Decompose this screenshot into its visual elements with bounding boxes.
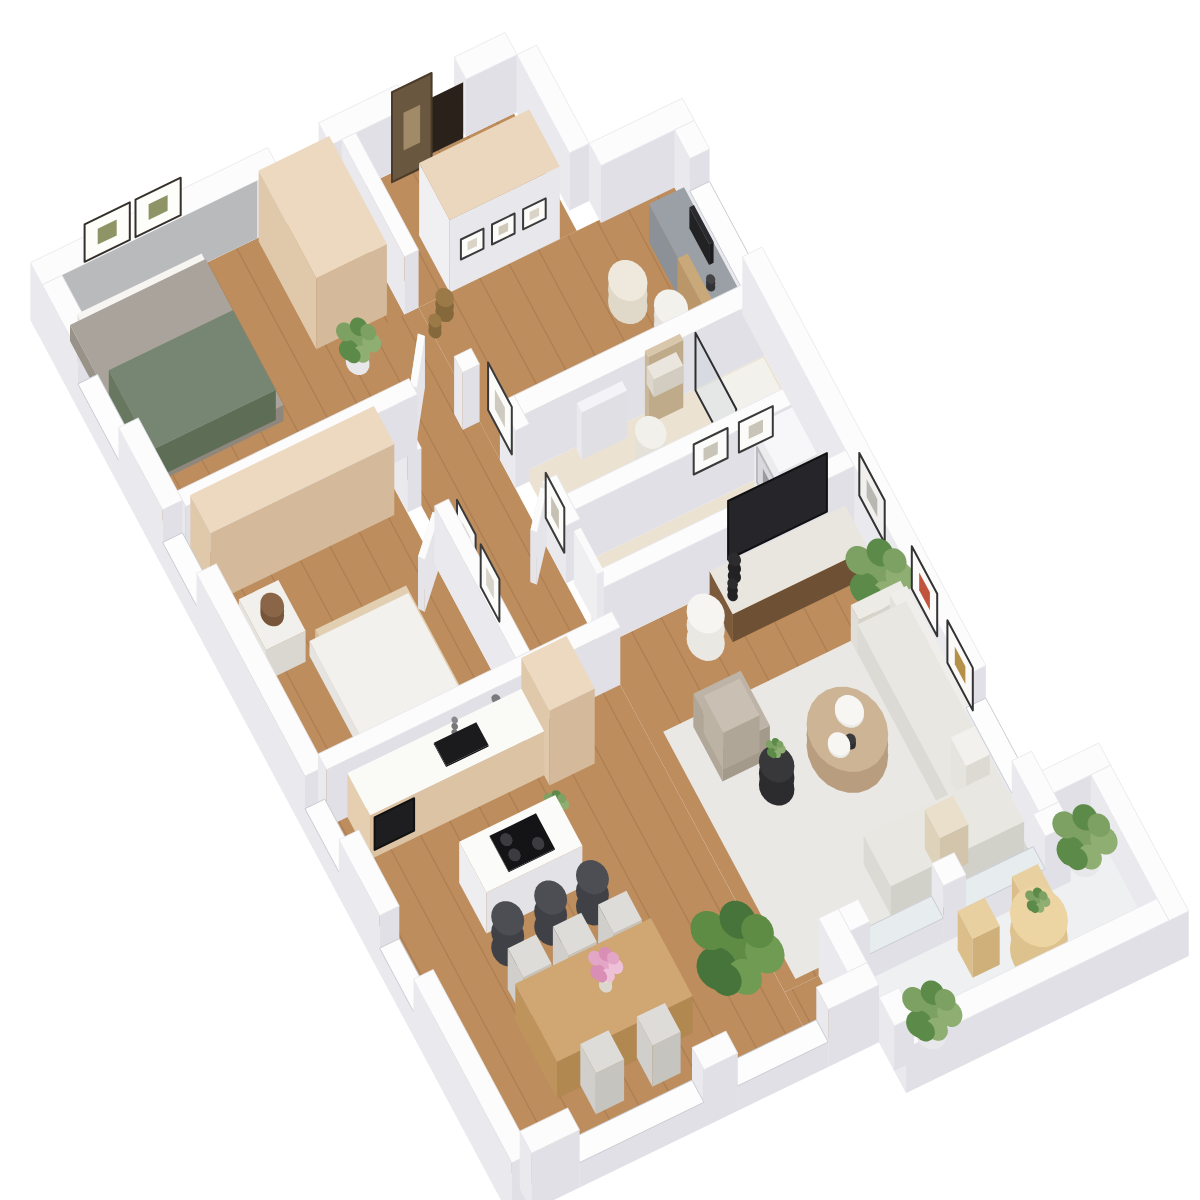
entry-pot-2 <box>428 314 441 339</box>
office-desk-item-2 <box>706 274 715 291</box>
office-pouf <box>608 260 648 324</box>
bedroom2-chair-pillow <box>260 593 284 627</box>
wall-bedroom1-se-a <box>454 348 480 430</box>
floorplan-canvas <box>0 0 1200 1200</box>
living-sphere-lamp <box>687 594 725 661</box>
tv-console-vase-2 <box>727 578 738 601</box>
floorplan-image <box>0 0 1200 1200</box>
